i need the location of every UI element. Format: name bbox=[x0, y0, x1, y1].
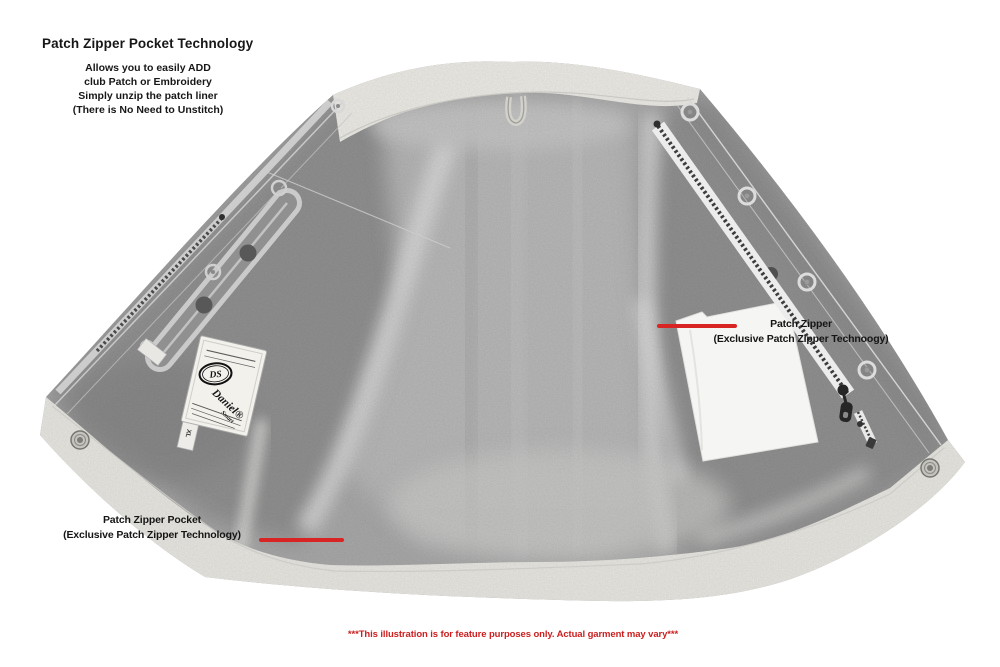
callout-subtitle: (Exclusive Patch Zipper Technology) bbox=[30, 528, 274, 543]
snap-button bbox=[196, 297, 213, 314]
grommet bbox=[921, 459, 939, 477]
callout-title: Patch Zipper bbox=[680, 317, 922, 332]
grommet bbox=[71, 431, 89, 449]
snap-button bbox=[682, 104, 698, 120]
callout-patch-zipper: Patch Zipper (Exclusive Patch Zipper Tec… bbox=[680, 317, 922, 346]
description-line: club Patch or Embroidery bbox=[47, 75, 249, 89]
description-line: Allows you to easily ADD bbox=[47, 61, 249, 75]
feature-description: Allows you to easily ADD club Patch or E… bbox=[47, 61, 249, 117]
disclaimer-text: ***This illustration is for feature purp… bbox=[13, 629, 1000, 640]
description-line: Simply unzip the patch liner bbox=[47, 89, 249, 103]
callout-patch-zipper-pocket: Patch Zipper Pocket (Exclusive Patch Zip… bbox=[30, 513, 274, 542]
snap-button bbox=[799, 274, 815, 290]
page-title: Patch Zipper Pocket Technology bbox=[42, 36, 253, 51]
illustration-page: DS Daniel® Smart XL bbox=[0, 0, 1000, 667]
description-line: (There is No Need to Unstitch) bbox=[47, 103, 249, 117]
callout-subtitle: (Exclusive Patch Zipper Technoogy) bbox=[680, 332, 922, 347]
callout-title: Patch Zipper Pocket bbox=[30, 513, 274, 528]
snap-button bbox=[859, 362, 875, 378]
snap-button bbox=[240, 245, 257, 262]
snap-button bbox=[739, 188, 755, 204]
brand-logo-text: DS bbox=[208, 370, 222, 381]
